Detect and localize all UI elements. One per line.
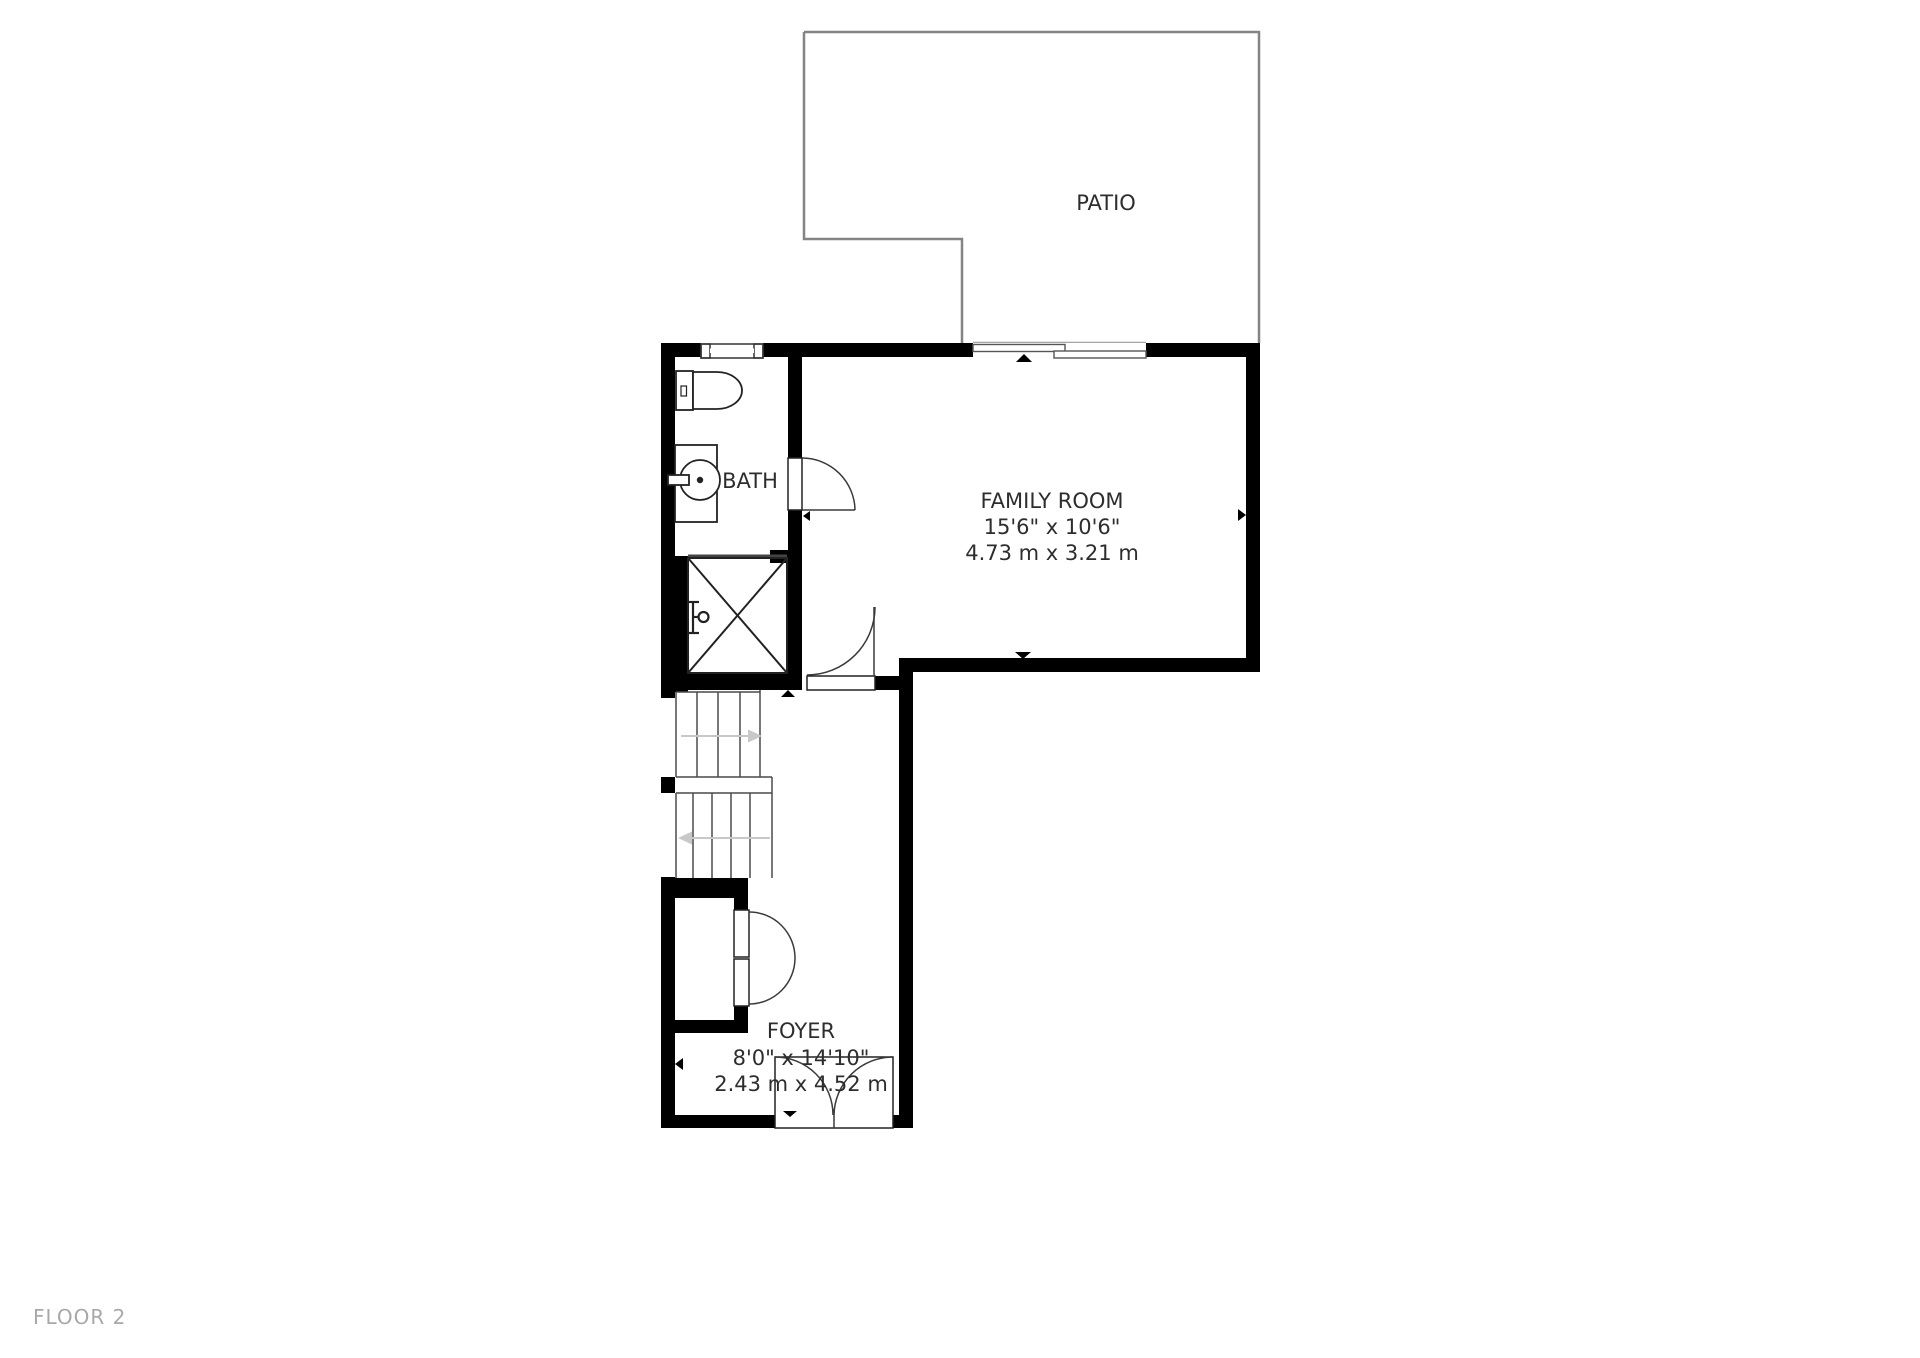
room-label-bath: BATH: [722, 469, 778, 493]
stairs-up-flight: [676, 690, 760, 777]
patio-outline: [804, 32, 1259, 343]
wall-left-landing-stub: [661, 777, 675, 793]
marker-left-icon: [803, 511, 810, 521]
sliding-panel-left: [973, 345, 1065, 352]
wall-bath-divider-upper: [788, 357, 802, 458]
marker-down-icon: [1015, 652, 1031, 659]
stairs-down-flight: [676, 777, 772, 878]
stair-door: [807, 607, 875, 690]
room-label-foyer: FOYER: [767, 1019, 835, 1043]
wall-family-room-bottom: [899, 658, 1260, 672]
foyer-dims-imperial: 8'0" x 14'10": [733, 1046, 870, 1070]
stair-door-leaf: [807, 676, 875, 690]
wall-top-mid: [763, 343, 973, 357]
toilet-icon: [676, 371, 742, 410]
marker-up-icon: [1016, 354, 1032, 362]
sink-faucet: [668, 475, 689, 485]
patio-notch-outline: [804, 32, 962, 343]
shower-valve-icon: [688, 602, 709, 633]
stair-arrow-lines: [681, 736, 770, 838]
marker-left-icon: [675, 1058, 683, 1070]
closet-door: [734, 910, 795, 1006]
room-label-patio: PATIO: [1076, 191, 1136, 215]
wall-bottom-left: [661, 1115, 775, 1128]
floor-label: FLOOR 2: [33, 1305, 126, 1329]
room-labels: PATIO BATH FAMILY ROOM 15'6" x 10'6" 4.7…: [714, 191, 1139, 1096]
closet-door-leaf-lower: [734, 959, 749, 1006]
valve-knob: [699, 612, 709, 622]
wall-shower-left: [675, 556, 688, 692]
foyer-dims-metric: 2.43 m x 4.52 m: [714, 1072, 888, 1096]
sink-drain: [697, 477, 703, 483]
shower-icon: [688, 556, 787, 673]
closet-door-swing-arc-lower: [749, 958, 795, 1004]
window-center-stripe: [710, 349, 754, 354]
stairs-landing: [676, 777, 772, 793]
wall-bath-divider-lower: [788, 510, 802, 690]
stair-arrow-left-icon: [678, 832, 692, 845]
window-endcap-left: [701, 344, 710, 358]
wall-left-lower: [661, 877, 675, 1128]
patio-outline-group: [804, 32, 1259, 343]
toilet-bowl: [693, 372, 742, 409]
bath-window: [701, 344, 763, 358]
wall-bottom-entry-right: [893, 1115, 913, 1128]
family-room-dims-imperial: 15'6" x 10'6": [984, 515, 1121, 539]
bath-door-swing-arc: [802, 458, 855, 510]
bath-door: [788, 458, 855, 510]
wall-stair-door-side: [875, 676, 913, 690]
wall-below-shower: [661, 673, 802, 690]
wall-foyer-right: [899, 658, 913, 1128]
sliding-door-icon: [973, 345, 1146, 359]
marker-right-icon: [1238, 509, 1246, 521]
closet-door-leaf-upper: [734, 910, 749, 957]
wall-stairs-closet: [675, 878, 748, 898]
wall-left-upper: [661, 343, 675, 698]
closet-door-swing-arc-upper: [749, 912, 795, 958]
toilet-flush-button: [681, 386, 687, 396]
wall-top-right: [1146, 343, 1260, 357]
window-endcap-right: [754, 344, 763, 358]
stairs-icon: [676, 690, 772, 878]
marker-up-icon: [781, 690, 795, 697]
floor-plan-drawing: PATIO BATH FAMILY ROOM 15'6" x 10'6" 4.7…: [0, 0, 1920, 1358]
bath-door-leaf: [788, 458, 802, 510]
family-room-dims-metric: 4.73 m x 3.21 m: [965, 541, 1139, 565]
floor-plan-page: PATIO BATH FAMILY ROOM 15'6" x 10'6" 4.7…: [0, 0, 1920, 1358]
sink-icon: [668, 445, 720, 522]
wall-closet-bottom: [675, 1020, 748, 1033]
sliding-panel-right: [1054, 351, 1146, 358]
wall-family-room-right: [1246, 343, 1260, 672]
stair-door-swing-arc: [807, 607, 875, 675]
room-label-family-room: FAMILY ROOM: [980, 489, 1123, 513]
